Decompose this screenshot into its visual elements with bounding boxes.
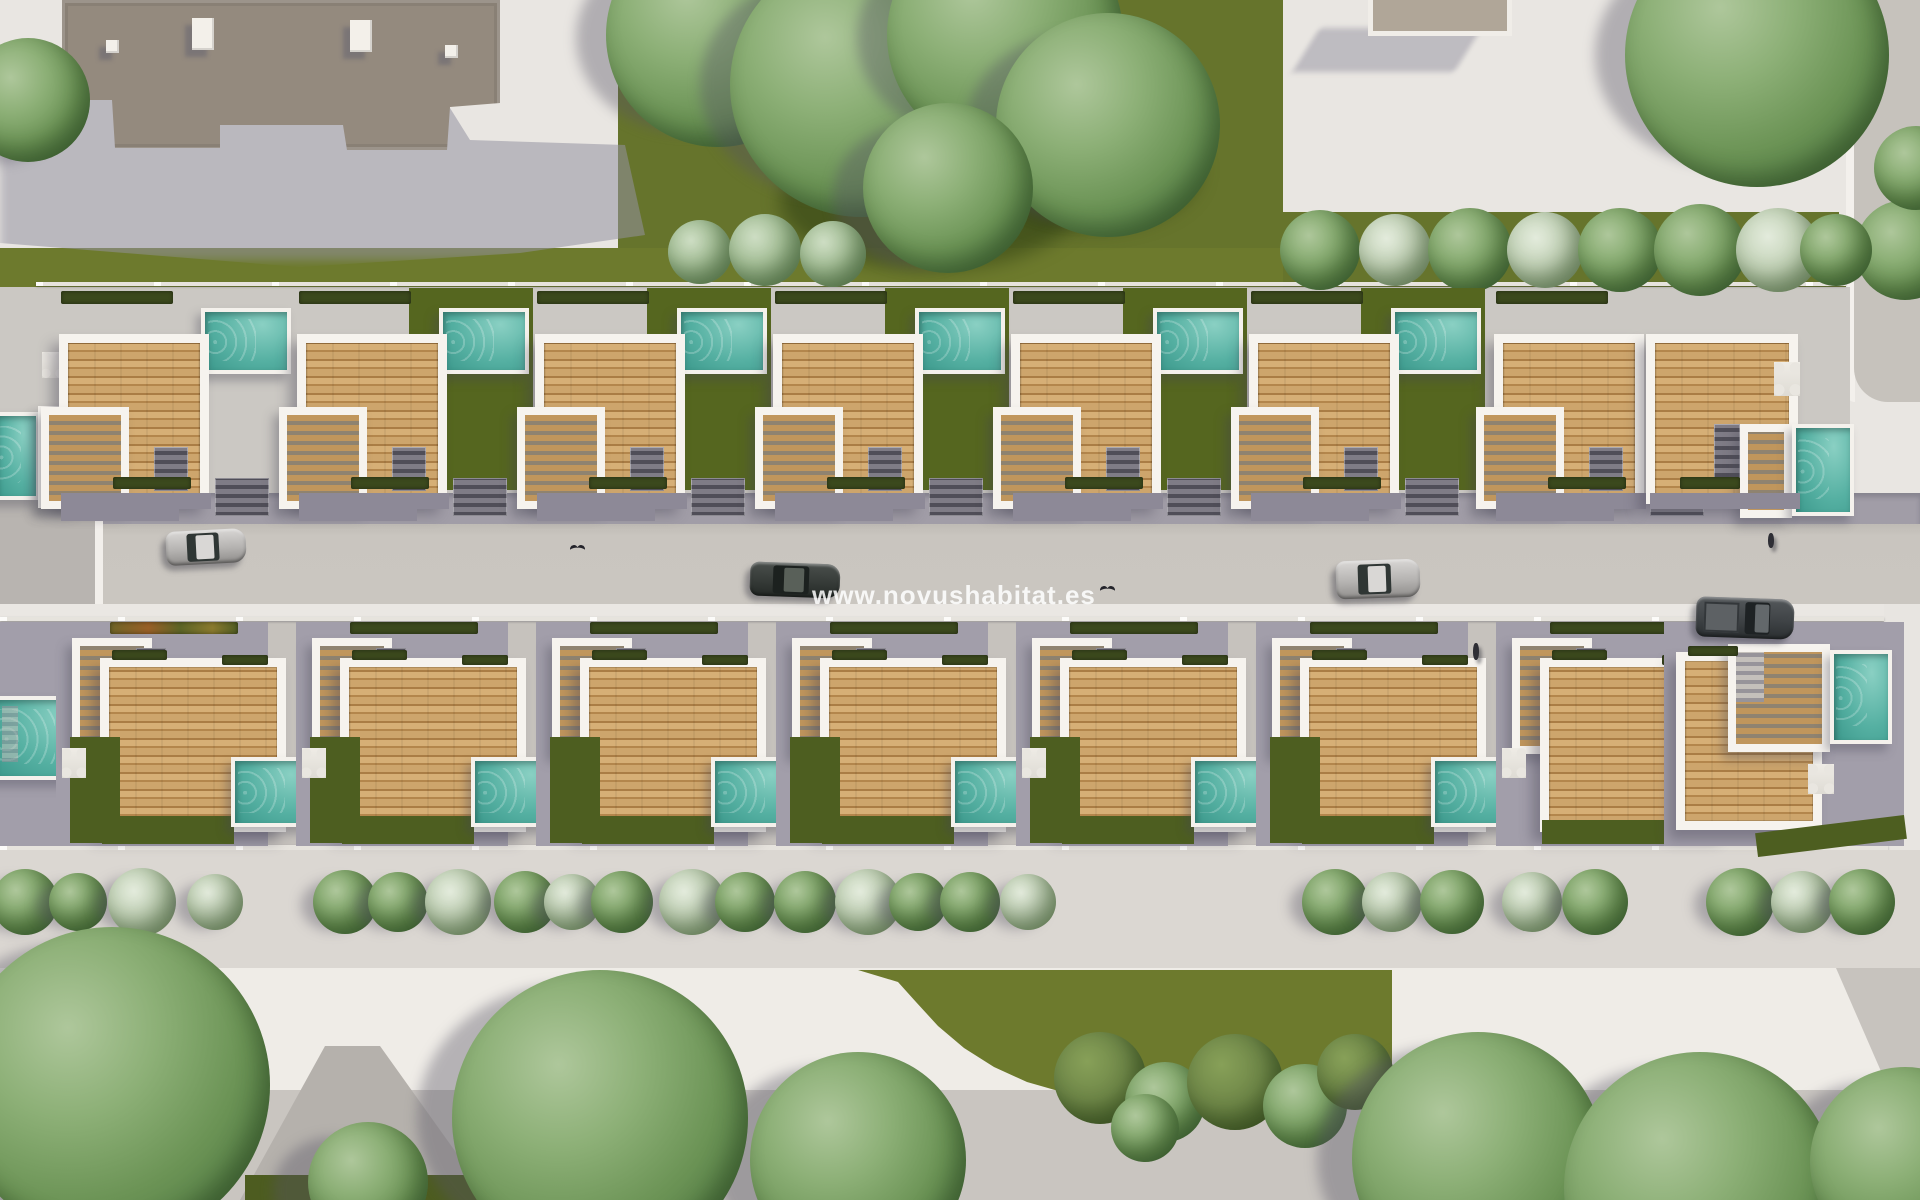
villa-entrance-stairs [929, 478, 983, 516]
villa-hedge [827, 477, 905, 489]
villa-hedge [299, 291, 411, 304]
garden-furniture [1502, 748, 1526, 778]
bird-icon [570, 543, 586, 551]
unit-shadow [1013, 509, 1131, 521]
villa-hedge [775, 291, 887, 304]
villa-hedge [352, 650, 407, 660]
unit-shadow [1251, 493, 1401, 509]
villa-garden [342, 816, 474, 844]
aerial-development-render: www.novushabitat.es [0, 0, 1920, 1200]
villa-pool [439, 308, 529, 374]
villa-pool [0, 412, 40, 500]
villa-hedge [222, 655, 268, 665]
villa-pool [201, 308, 291, 374]
villa-entrance-stairs [1167, 478, 1221, 516]
bush [425, 869, 491, 935]
villa-hedge [589, 477, 667, 489]
pool-steps [2, 706, 18, 762]
unit-shadow [299, 509, 417, 521]
lower-row-fence-top [0, 617, 1884, 621]
garden-furniture [1808, 764, 1834, 794]
bush [1578, 208, 1662, 292]
villa-planter [830, 622, 958, 634]
villa-hedge [702, 655, 748, 665]
vehicle-silver [165, 528, 247, 566]
unit-shadow [1650, 493, 1800, 509]
bush [1654, 204, 1746, 296]
unit-shadow [775, 493, 925, 509]
unit-shadow [299, 493, 449, 509]
villa-hedge [1182, 655, 1228, 665]
villa-hedge [832, 650, 887, 660]
villa-hedge [1013, 291, 1125, 304]
person [1473, 643, 1479, 660]
bush [1507, 212, 1583, 288]
villa-hedge [1303, 477, 1381, 489]
bush [1111, 1094, 1179, 1162]
bush [108, 868, 176, 936]
villa-hedge [1422, 655, 1468, 665]
vehicle-roof [1754, 605, 1769, 633]
unit-shadow [775, 509, 893, 521]
villa-planter [1550, 622, 1678, 634]
bush [1420, 870, 1484, 934]
pickup-bed [1703, 601, 1739, 633]
bush [1428, 208, 1512, 292]
villa-planter [350, 622, 478, 634]
villa-hedge [462, 655, 508, 665]
tree [863, 103, 1033, 273]
villa-hedge [1552, 650, 1607, 660]
street-end-curb [95, 520, 103, 604]
roof-vent [106, 40, 119, 53]
vehicle-silver [1335, 559, 1420, 600]
villa-hedge [592, 650, 647, 660]
bush [1829, 869, 1895, 935]
villa-stairs [1736, 652, 1764, 702]
bush [1562, 869, 1628, 935]
vehicle-roof [196, 535, 215, 559]
villa-garden [822, 816, 954, 844]
vehicle-roof [1367, 566, 1386, 592]
villa-pool [1792, 424, 1854, 516]
villa-pool [1153, 308, 1243, 374]
bush [1280, 210, 1360, 290]
villa-hedge [1680, 477, 1740, 489]
garden-furniture [62, 748, 86, 778]
villa-garden [1062, 816, 1194, 844]
villa-entrance-stairs [691, 478, 745, 516]
villa-hedge [1548, 477, 1626, 489]
unit-shadow [537, 509, 655, 521]
unit-shadow [61, 493, 211, 509]
upper-row-fence [36, 282, 1846, 286]
villa-hedge [1251, 291, 1363, 304]
villa-garden [582, 816, 714, 844]
villa-entrance-stairs [453, 478, 507, 516]
tree [668, 220, 732, 284]
unit-shadow [1496, 493, 1646, 509]
roof-vent [192, 18, 214, 50]
villa-hedge [1312, 650, 1367, 660]
garden-furniture [302, 748, 326, 778]
villa-entrance-stairs [215, 478, 269, 516]
bush [187, 874, 243, 930]
villa-hedge [1688, 646, 1738, 656]
roof-vent [445, 45, 458, 58]
watermark: www.novushabitat.es [812, 582, 1096, 608]
villa-hedge [1072, 650, 1127, 660]
garden-furniture [1774, 362, 1800, 396]
villa-pool [1391, 308, 1481, 374]
villa-planter [1310, 622, 1438, 634]
villa-pool [915, 308, 1005, 374]
villa-hedge [1496, 291, 1608, 304]
villa-planter [1070, 622, 1198, 634]
villa-garden [102, 816, 234, 844]
villa-hedge [1065, 477, 1143, 489]
villa-hedge [537, 291, 649, 304]
bush [1000, 874, 1056, 930]
villa-hedge [351, 477, 429, 489]
garden-furniture [1022, 748, 1046, 778]
unit-shadow [1013, 493, 1163, 509]
person [1768, 533, 1774, 548]
unit-shadow [1251, 509, 1369, 521]
unit-shadow [61, 509, 179, 521]
unit-shadow [1496, 509, 1614, 521]
villa-pool [1830, 650, 1892, 744]
villa-garden [1302, 816, 1434, 844]
bush [591, 871, 653, 933]
villa-hedge [113, 477, 191, 489]
villa-planter [590, 622, 718, 634]
bird-icon [1100, 584, 1116, 592]
roof-vent [350, 20, 372, 52]
villa-planter [110, 622, 238, 634]
villa-entrance-stairs [1405, 478, 1459, 516]
tree [800, 221, 866, 287]
tree [729, 214, 801, 286]
roof-structure [1368, 0, 1512, 36]
vehicle-roof [784, 568, 805, 592]
bush [1800, 214, 1872, 286]
unit-shadow [537, 493, 687, 509]
villa-hedge [112, 650, 167, 660]
villa-pool [677, 308, 767, 374]
villa-hedge [61, 291, 173, 304]
vehicle-pickup [1695, 596, 1794, 639]
bush [1359, 214, 1431, 286]
villa-hedge [942, 655, 988, 665]
